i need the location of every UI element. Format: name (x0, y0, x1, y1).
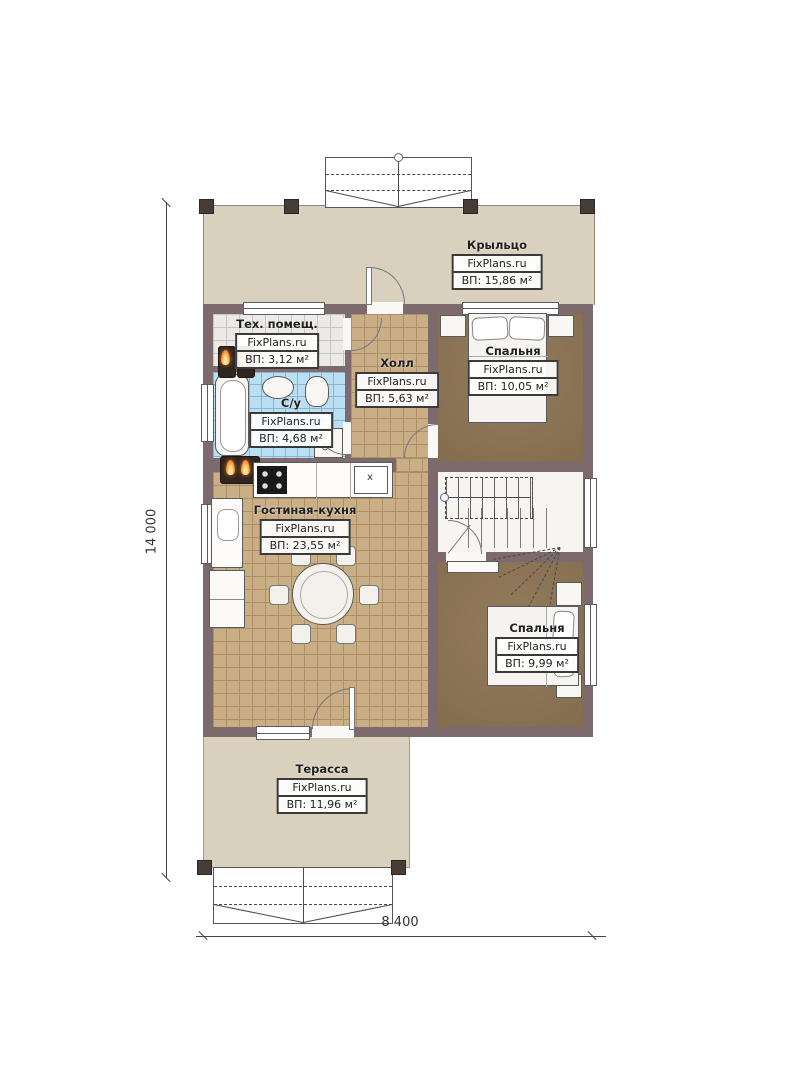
wardrobe (447, 561, 499, 573)
step-diagonal (326, 190, 398, 207)
watermark-fixplans: FixPlans.ru (357, 374, 437, 391)
room-name: С/у (249, 396, 333, 410)
stair-flight-lower (468, 508, 556, 548)
watermark-fixplans: FixPlans.ru (262, 521, 349, 538)
dimension-line-bottom (196, 936, 606, 937)
door-leaf-entrance (366, 267, 372, 305)
watermark-fixplans: FixPlans.ru (237, 335, 317, 352)
porch-post (580, 199, 595, 214)
room-area: ВП: 3,12 м² (237, 352, 317, 367)
sink-basin (217, 509, 239, 541)
porch-post (199, 199, 214, 214)
nightstand (440, 315, 466, 337)
watermark-fixplans: FixPlans.ru (251, 414, 331, 431)
step-diagonal (398, 190, 471, 207)
room-info-box: FixPlans.ru ВП: 3,12 м² (235, 333, 319, 369)
room-name: Спальня (468, 344, 559, 358)
pillow (508, 316, 545, 341)
room-info-box: FixPlans.ru ВП: 11,96 м² (277, 778, 368, 814)
porch-post (284, 199, 299, 214)
step-diagonal (214, 904, 303, 923)
dimension-label-left: 14 000 (145, 492, 160, 572)
window (584, 478, 597, 548)
room-name: Тех. помещ. (235, 317, 319, 331)
watermark-fixplans: FixPlans.ru (470, 362, 557, 379)
room-area: ВП: 5,63 м² (357, 391, 437, 406)
stair-guide-node (440, 493, 449, 502)
room-name: Спальня (495, 621, 579, 635)
room-name: Крыльцо (452, 238, 543, 252)
dimension-label-bottom: 8 400 (360, 915, 440, 930)
room-label-hall: Холл FixPlans.ru ВП: 5,63 м² (355, 356, 439, 408)
room-area: ВП: 4,68 м² (251, 431, 331, 446)
bathtub-basin (220, 380, 246, 452)
watermark-fixplans: FixPlans.ru (279, 780, 366, 797)
door-leaf-terrace (349, 687, 355, 730)
window (243, 302, 325, 315)
step-centerline (303, 868, 304, 923)
flame-icon (221, 350, 230, 365)
tech-door-opening (343, 318, 351, 350)
room-info-box: FixPlans.ru ВП: 23,55 м² (260, 519, 351, 555)
kitchen-counter-left (211, 498, 243, 568)
floor-plan-canvas: 14 000 8 400 (0, 0, 792, 1080)
dining-table (292, 563, 354, 625)
room-name: Холл (355, 356, 439, 370)
room-area: ВП: 15,86 м² (454, 273, 541, 288)
stair-guide-node (394, 153, 403, 162)
porch-steps (325, 157, 472, 208)
room-info-box: FixPlans.ru ВП: 10,05 м² (468, 360, 559, 396)
dimension-line-left (166, 202, 167, 878)
room-label-bedroom1: Спальня FixPlans.ru ВП: 10,05 м² (468, 344, 559, 396)
window (256, 726, 310, 740)
nightstand (556, 582, 582, 606)
room-area: ВП: 11,96 м² (279, 797, 366, 812)
terrace-post (391, 860, 406, 875)
hall-living-opening (396, 458, 428, 472)
table-ring (300, 571, 348, 619)
room-label-porch: Крыльцо FixPlans.ru ВП: 15,86 м² (452, 238, 543, 290)
counter-divider (350, 463, 351, 499)
room-name: Гостиная-кухня (254, 503, 357, 517)
room-area: ВП: 9,99 м² (497, 656, 577, 671)
room-info-box: FixPlans.ru ВП: 5,63 м² (355, 372, 439, 408)
room-label-tech: Тех. помещ. FixPlans.ru ВП: 3,12 м² (235, 317, 319, 369)
window (584, 604, 597, 686)
room-info-box: FixPlans.ru ВП: 9,99 м² (495, 637, 579, 673)
room-label-living-kitchen: Гостиная-кухня FixPlans.ru ВП: 23,55 м² (254, 503, 357, 555)
chair (291, 624, 311, 644)
room-name: Терасса (277, 762, 368, 776)
fridge (209, 570, 245, 628)
step-centerline (398, 158, 399, 207)
room-label-terrace: Терасса FixPlans.ru ВП: 11,96 м² (277, 762, 368, 814)
watermark-fixplans: FixPlans.ru (454, 256, 541, 273)
room-info-box: FixPlans.ru ВП: 4,68 м² (249, 412, 333, 448)
chair (269, 585, 289, 605)
flame-icon (226, 460, 235, 475)
stair-guide-line (447, 497, 531, 498)
window (201, 384, 214, 442)
sink-cross-mark: x (367, 472, 373, 483)
chair (336, 624, 356, 644)
porch-post (463, 199, 478, 214)
nightstand (548, 315, 574, 337)
pillow (471, 316, 508, 341)
room-label-bath: С/у FixPlans.ru ВП: 4,68 м² (249, 396, 333, 448)
bathtub (215, 374, 249, 456)
room-area: ВП: 23,55 м² (262, 538, 349, 553)
counter-divider (316, 463, 317, 499)
gas-hob (257, 466, 287, 494)
terrace-post (197, 860, 212, 875)
room-label-bedroom2: Спальня FixPlans.ru ВП: 9,99 м² (495, 621, 579, 673)
chair (359, 585, 379, 605)
room-info-box: FixPlans.ru ВП: 15,86 м² (452, 254, 543, 290)
flame-icon (241, 460, 250, 475)
watermark-fixplans: FixPlans.ru (497, 639, 577, 656)
room-area: ВП: 10,05 м² (470, 379, 557, 394)
